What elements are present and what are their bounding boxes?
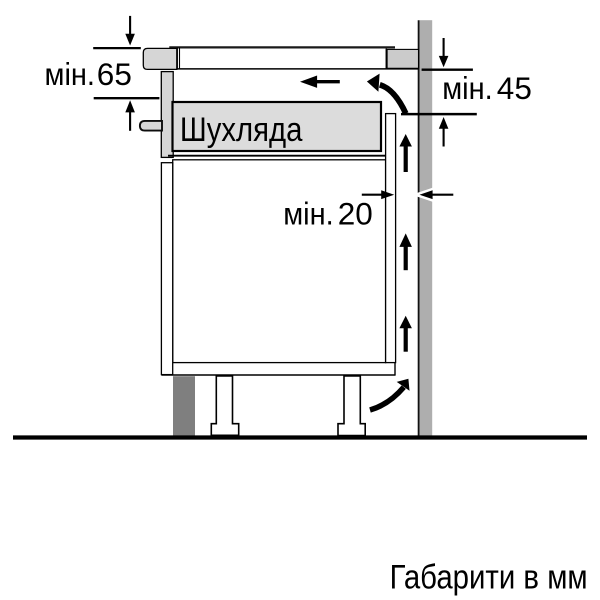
svg-text:мін.: мін. [442,70,493,106]
svg-text:20: 20 [338,195,373,231]
svg-text:Шухляда: Шухляда [180,111,303,149]
svg-text:Габарити в мм: Габарити в мм [390,559,588,597]
svg-text:мін.: мін. [45,56,96,92]
svg-text:45: 45 [497,70,532,106]
svg-text:65: 65 [97,56,132,92]
svg-text:мін.: мін. [283,195,334,231]
